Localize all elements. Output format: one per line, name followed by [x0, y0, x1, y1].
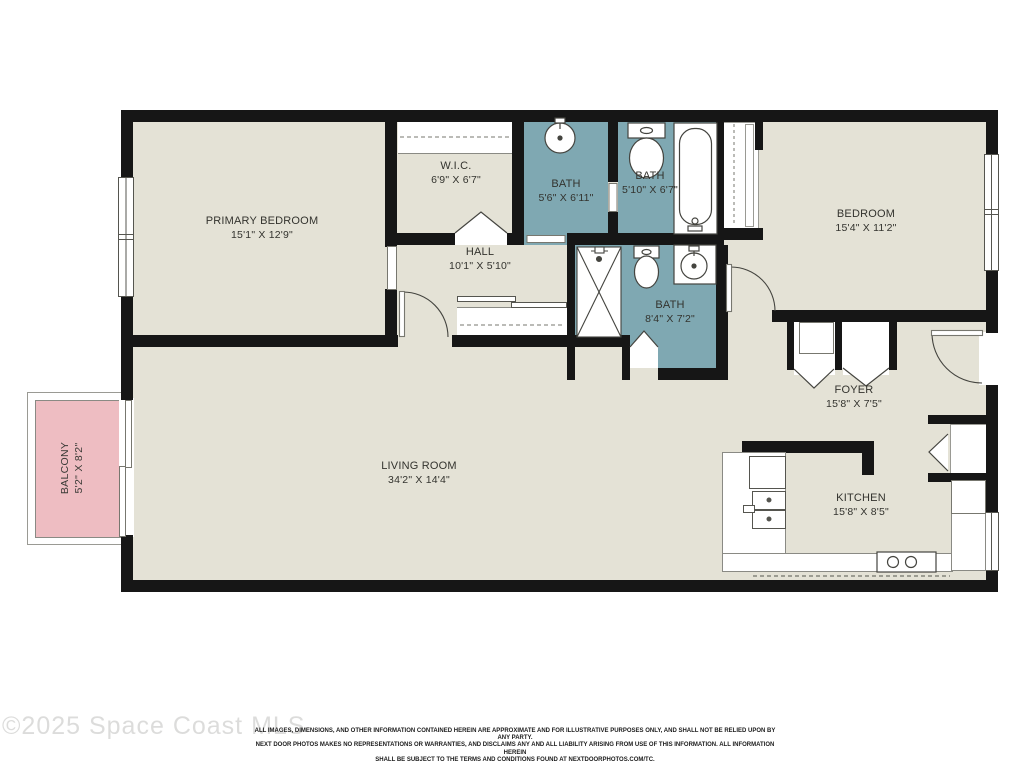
- floor-plan: PRIMARY BEDROOM 15'1" X 12'9" W.I.C. 6'9…: [0, 0, 1024, 768]
- primary-bedroom-door-leaf: [388, 247, 397, 290]
- bathtub-icon: [674, 123, 717, 234]
- label-bedroom: BEDROOM 15'4" X 11'2": [835, 207, 896, 235]
- bath-1-sink-icon: [545, 118, 575, 153]
- bath-1-door-leaf: [527, 236, 565, 243]
- label-bath-2: BATH 5'10" X 6'7": [622, 169, 678, 197]
- label-bath-1: BATH 5'6" X 6'11": [538, 177, 593, 205]
- label-kitchen: KITCHEN 15'8" X 8'5": [833, 491, 889, 519]
- disclaimer-line-3: SHALL BE SUBJECT TO THE TERMS AND CONDIT…: [253, 757, 777, 764]
- label-balcony: BALCONY 5'2" X 8'2": [58, 442, 86, 494]
- bath1-bath2-door-leaf: [609, 184, 617, 212]
- label-hall: HALL 10'1" X 5'10": [449, 245, 511, 273]
- refrigerator-icon: [952, 481, 986, 514]
- primary-bedroom-window: [118, 177, 134, 297]
- disclaimer-line-1: ALL IMAGES, DIMENSIONS, AND OTHER INFORM…: [253, 728, 777, 742]
- pantry-bifold: [929, 434, 948, 471]
- balcony-slider-icon: [120, 401, 132, 537]
- shower-icon: [577, 247, 621, 337]
- water-heater: [800, 323, 834, 354]
- bedroom-window: [984, 154, 999, 271]
- disclaimer-text: ALL IMAGES, DIMENSIONS, AND OTHER INFORM…: [253, 728, 777, 764]
- bath-3-door-chevron: [630, 331, 658, 347]
- entry-door-swing: [932, 331, 983, 384]
- hall-door-swing: [400, 292, 449, 338]
- wic-bifold-door: [455, 212, 507, 233]
- bedroom-closet-shelf: [746, 125, 754, 227]
- label-living-room: LIVING ROOM 34'2" X 14'4": [381, 459, 457, 487]
- label-wic: W.I.C. 6'9" X 6'7": [431, 159, 481, 187]
- bedroom-door-swing: [727, 265, 776, 312]
- label-bath-3: BATH 8'4" X 7'2": [645, 298, 695, 326]
- dishwasher-icon: [750, 457, 786, 489]
- stove-icon: [877, 552, 936, 572]
- bath-3-toilet-icon: [634, 246, 659, 288]
- kitchen-window: [985, 512, 999, 571]
- disclaimer-line-2: NEXT DOOR PHOTOS MAKES NO REPRESENTATION…: [253, 742, 777, 756]
- bath-3-sink-icon: [674, 245, 716, 284]
- label-primary-bedroom: PRIMARY BEDROOM 15'1" X 12'9": [206, 214, 319, 242]
- label-foyer: FOYER 15'8" X 7'5": [826, 383, 882, 411]
- hall-closet-sliding-door: [458, 297, 567, 308]
